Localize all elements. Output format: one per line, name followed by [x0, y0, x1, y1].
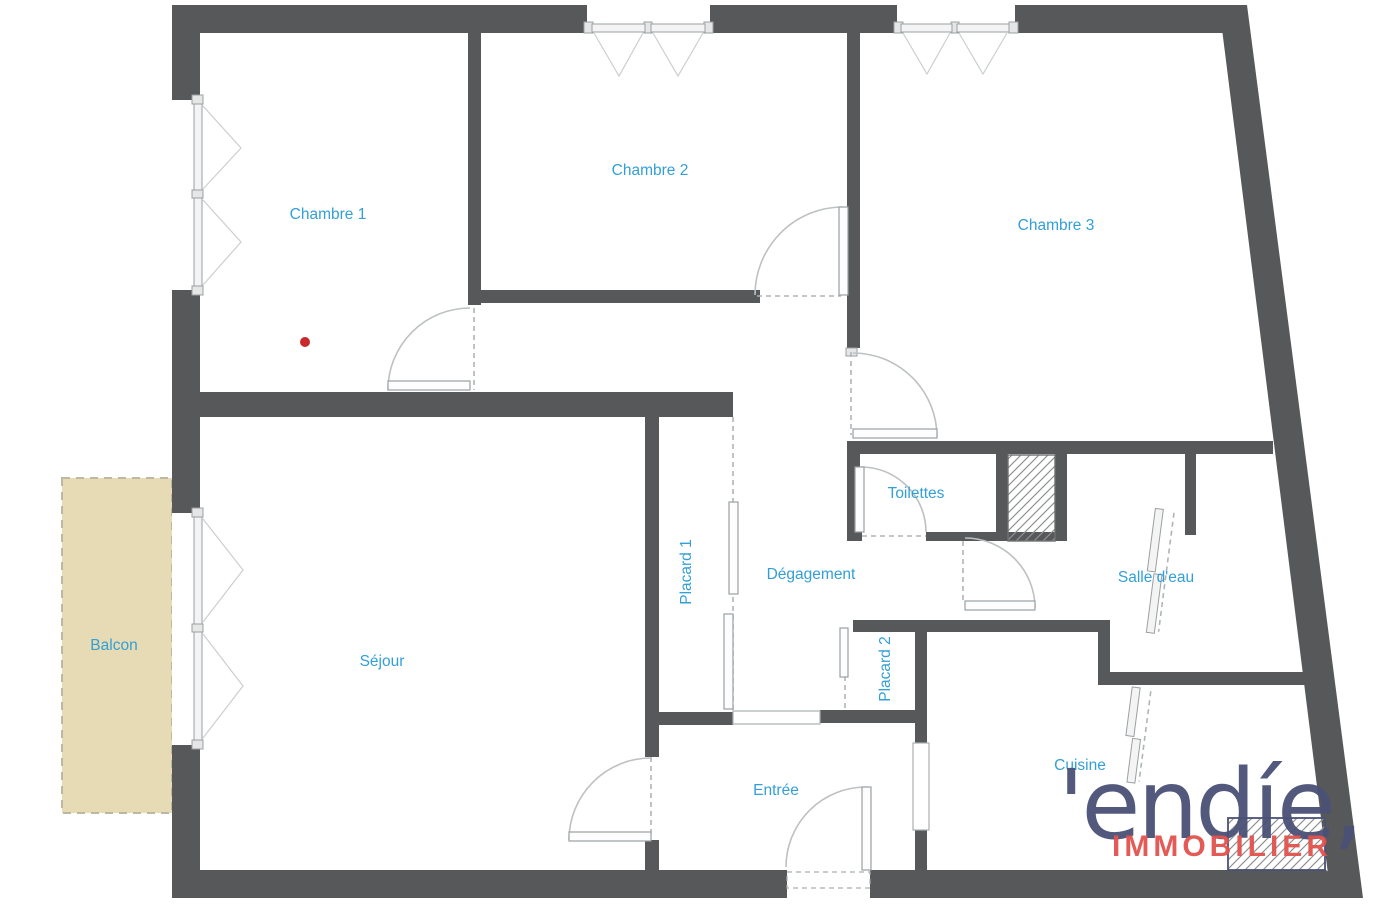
red-dot-marker — [300, 337, 310, 347]
label-sejour: Séjour — [360, 653, 405, 670]
door-chambre2 — [755, 207, 848, 296]
label-entree: Entrée — [753, 782, 799, 799]
label-chambre1: Chambre 1 — [290, 206, 367, 223]
door-chambre1 — [388, 308, 474, 390]
label-salledeau: Salle d'eau — [1118, 569, 1194, 586]
placard1-sliding-doors — [724, 417, 738, 712]
door-sejour — [569, 757, 651, 841]
label-toilettes: Toilettes — [888, 485, 945, 502]
placard2-sliding-door — [840, 628, 848, 712]
floor-plan-canvas: Chambre 1 Chambre 2 Chambre 3 Séjour Bal… — [0, 0, 1400, 916]
windows-right-wall — [1117, 505, 1182, 786]
label-chambre3: Chambre 3 — [1018, 217, 1095, 234]
window-sejour — [172, 508, 243, 749]
label-placard1: Placard 1 — [678, 539, 695, 604]
opening-degagement-entree — [733, 711, 820, 724]
label-balcon: Balcon — [90, 637, 137, 654]
window-chambre3 — [894, 5, 1018, 74]
logo-tagline-text: IMMOBILIER — [1112, 830, 1332, 863]
door-salledeau — [963, 538, 1035, 610]
label-chambre2: Chambre 2 — [612, 162, 689, 179]
opening-entree-cuisine — [913, 743, 929, 830]
window-chambre2 — [584, 5, 713, 76]
agency-logo: 'endíe, IMMOBILIER — [1058, 749, 1360, 863]
label-degagement: Dégagement — [767, 566, 856, 583]
floor-plan-page: Chambre 1 Chambre 2 Chambre 3 Séjour Bal… — [0, 0, 1400, 916]
window-chambre1 — [172, 95, 241, 295]
technical-shaft-hatch — [1008, 455, 1055, 541]
label-placard2: Placard 2 — [877, 636, 894, 701]
door-chambre3 — [851, 352, 937, 438]
door-entrance — [786, 787, 871, 898]
